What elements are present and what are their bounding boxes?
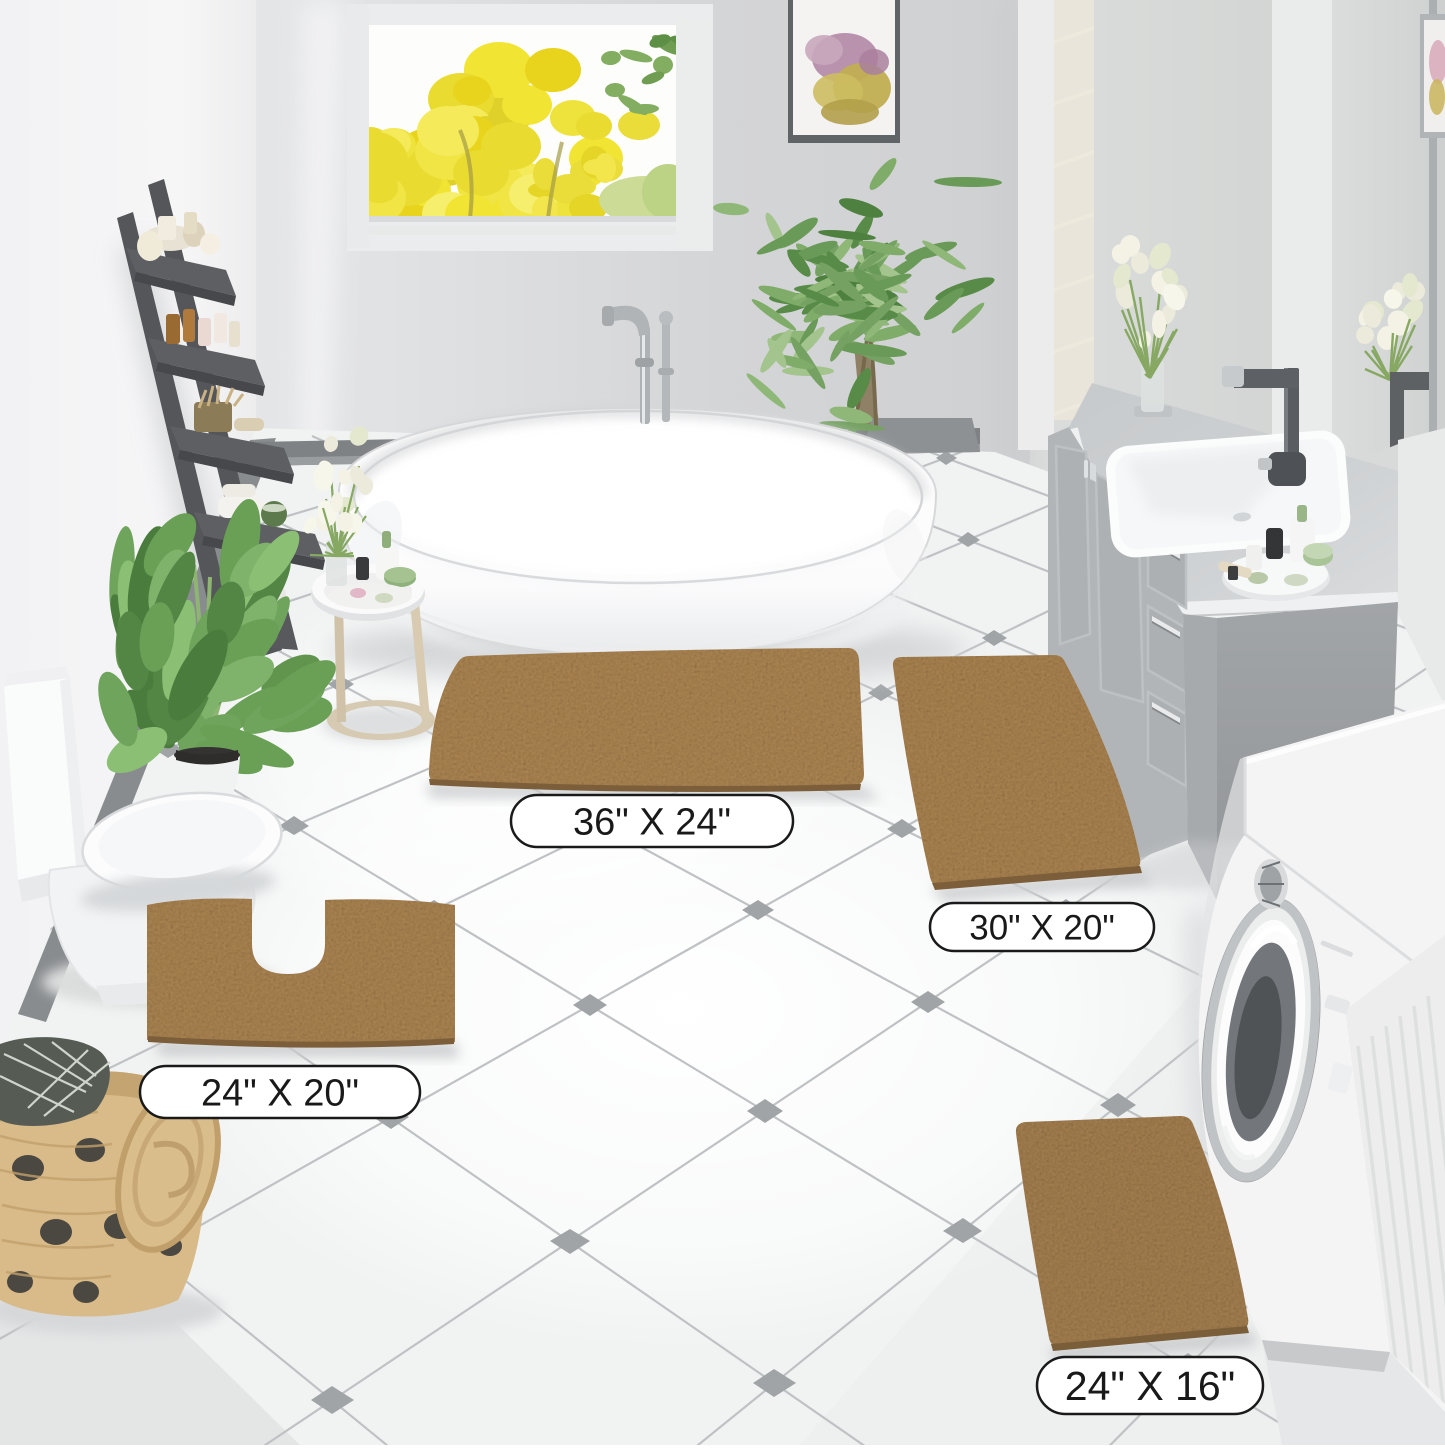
svg-text:24" X 16": 24" X 16" — [1065, 1363, 1235, 1409]
svg-text:30" X 20": 30" X 20" — [969, 908, 1115, 947]
svg-text:36" X 24": 36" X 24" — [573, 801, 731, 843]
svg-text:24" X 20": 24" X 20" — [201, 1072, 359, 1114]
